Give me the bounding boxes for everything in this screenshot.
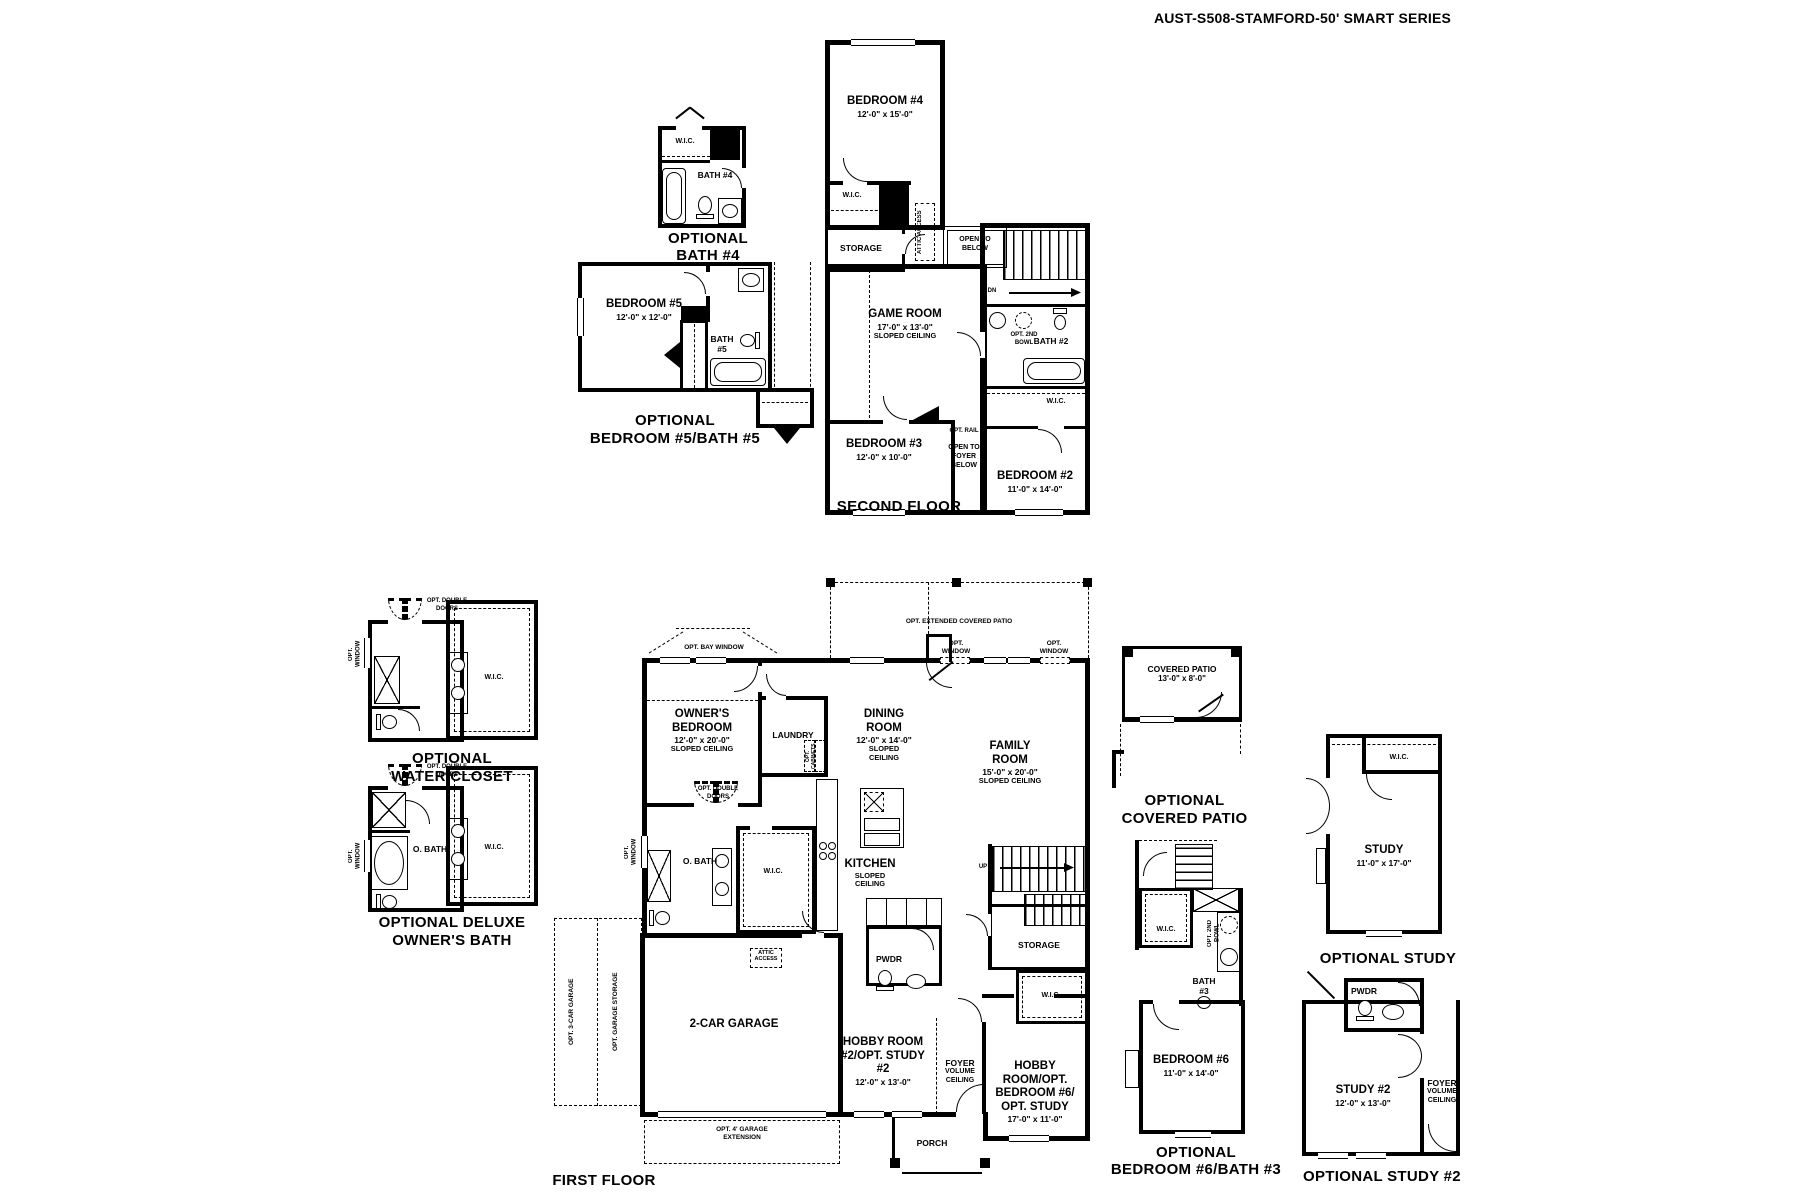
room-name: FOYER bbox=[936, 1058, 984, 1068]
caption-owners-bath: OWNER'S BATH bbox=[352, 932, 552, 950]
toilet bbox=[878, 970, 892, 986]
room-label-foyer: FOYER VOLUME CEILING bbox=[1424, 1078, 1460, 1106]
door-arc bbox=[958, 998, 982, 1022]
island-sink bbox=[864, 792, 884, 812]
door-arc bbox=[966, 914, 988, 936]
room-note: SLOPED CEILING bbox=[842, 872, 898, 889]
door-opening bbox=[706, 272, 710, 296]
room-label-storage: STORAGE bbox=[1012, 940, 1066, 950]
opt-double-doors-label: OPT. DOUBLE DOORS bbox=[696, 786, 740, 801]
shower bbox=[647, 850, 671, 902]
window bbox=[364, 840, 371, 872]
room-name: COVERED PATIO bbox=[1147, 664, 1217, 674]
sink bbox=[722, 204, 738, 218]
ceiling-break-line bbox=[647, 700, 758, 701]
sheet-title: AUST-S508-STAMFORD-50' SMART SERIES bbox=[1130, 10, 1475, 26]
room-dims: 12'-0" x 10'-0" bbox=[837, 452, 931, 462]
room-label-pwdr: PWDR bbox=[1338, 986, 1390, 996]
wall bbox=[984, 304, 1088, 307]
room-name: KITCHEN bbox=[842, 858, 898, 872]
room-label-bath5: BATH #5 bbox=[706, 334, 738, 354]
shelf-line bbox=[662, 156, 710, 157]
burner bbox=[819, 852, 827, 860]
opt-garage-storage-label: OPT. GARAGE STORAGE bbox=[612, 962, 624, 1062]
window bbox=[660, 657, 690, 664]
room-label-covered-patio: COVERED PATIO 13'-0" x 8'-0" bbox=[1147, 664, 1217, 684]
window bbox=[984, 657, 1006, 664]
caption-covered-patio: COVERED PATIO bbox=[1112, 810, 1257, 828]
door-arc bbox=[766, 674, 786, 696]
sink bbox=[451, 824, 465, 838]
door-leaf bbox=[675, 107, 690, 120]
opt-patio-line bbox=[830, 582, 831, 658]
sink bbox=[1220, 948, 1238, 966]
opt-2nd-bowl-label: OPT. 2ND BOWL bbox=[1207, 912, 1217, 954]
sink bbox=[715, 882, 729, 896]
room-label-wic: W.I.C. bbox=[750, 868, 796, 877]
room-name: FOYER bbox=[1424, 1078, 1460, 1088]
room-label-owners-bedroom: OWNER'S BEDROOM 12'-0" x 20'-0" SLOPED C… bbox=[650, 708, 754, 754]
stairs bbox=[992, 846, 1086, 892]
opt-window-label: OPT. WINDOW bbox=[624, 832, 636, 872]
window bbox=[641, 836, 648, 868]
context-line bbox=[810, 262, 811, 392]
room-label-hobby6: HOBBY ROOM/OPT. BEDROOM #6/ OPT. STUDY 1… bbox=[984, 1060, 1086, 1124]
room-label-kitchen: KITCHEN SLOPED CEILING bbox=[842, 858, 898, 889]
closet-line bbox=[694, 324, 695, 388]
opt-bay-window-label: OPT. BAY WINDOW bbox=[666, 644, 762, 652]
shower bbox=[1193, 888, 1239, 912]
toilet-tank bbox=[1356, 1016, 1374, 1021]
bathtub bbox=[710, 358, 766, 386]
optional-study2-plan: PWDR STUDY #2 12'-0" x 13'-0" FOYER VOLU… bbox=[1300, 972, 1472, 1187]
door-opening bbox=[750, 826, 772, 830]
toilet-tank bbox=[755, 332, 760, 349]
bathtub bbox=[1023, 358, 1085, 384]
room-name: FAMILY ROOM bbox=[978, 740, 1042, 767]
bench-line bbox=[926, 898, 927, 926]
wall-jog bbox=[1125, 1050, 1139, 1088]
post bbox=[952, 578, 961, 587]
room-label-laundry: LAUNDRY bbox=[764, 730, 822, 740]
wall bbox=[984, 426, 1088, 429]
first-floor-plan: OPT. EXTENDED COVERED PATIO OPT. BAY WIN… bbox=[554, 560, 1102, 1200]
window bbox=[1366, 930, 1402, 937]
door-opening bbox=[742, 168, 746, 188]
wall bbox=[1362, 736, 1366, 772]
room-label-obath: O. BATH bbox=[410, 844, 450, 854]
stairs bbox=[1003, 230, 1087, 280]
optional-deluxe-owners-bath-plan: OPT. DOUBLE DOORS OPT. WINDOW O. BATH W.… bbox=[352, 752, 552, 950]
toilet-tank bbox=[376, 714, 381, 730]
window bbox=[850, 657, 884, 664]
room-label-pwdr: PWDR bbox=[868, 954, 910, 964]
toilet-tank bbox=[696, 214, 714, 219]
room-name: HOBBY ROOM/OPT. BEDROOM #6/ OPT. STUDY bbox=[984, 1060, 1086, 1114]
window bbox=[892, 1111, 922, 1118]
post bbox=[1231, 646, 1242, 657]
room-name: BEDROOM #3 bbox=[837, 438, 931, 452]
bathtub-inner bbox=[666, 172, 682, 220]
room-name: BEDROOM #2 bbox=[993, 470, 1077, 484]
door-opening bbox=[676, 126, 702, 130]
ceiling-break-line bbox=[869, 270, 870, 418]
burner bbox=[828, 852, 836, 860]
opt-door-arc bbox=[405, 598, 422, 620]
optional-bed6-bath3-plan: W.I.C. OPT. 2ND BOWL BATH #3 BEDROOM #6 … bbox=[1115, 838, 1277, 1183]
wall bbox=[1122, 646, 1242, 649]
caption-optional-deluxe: OPTIONAL DELUXE bbox=[352, 914, 552, 932]
room-label-porch: PORCH bbox=[902, 1138, 962, 1148]
shelf-line bbox=[743, 833, 809, 927]
wall bbox=[984, 386, 1088, 389]
sink bbox=[451, 852, 465, 866]
room-label-wic: W.I.C. bbox=[829, 192, 875, 201]
context-line bbox=[1240, 724, 1241, 754]
window bbox=[1140, 716, 1174, 723]
room-name: BEDROOM #6 bbox=[1149, 1054, 1233, 1068]
room-name: BEDROOM #4 bbox=[839, 95, 931, 109]
room-label-dining: DINING ROOM 12'-0" x 14'-0" SLOPED CEILI… bbox=[854, 708, 914, 763]
opt-door-arc bbox=[388, 764, 405, 786]
wall bbox=[1424, 1152, 1460, 1156]
opt-window bbox=[1040, 657, 1070, 664]
room-note: VOLUME CEILING bbox=[936, 1068, 984, 1086]
post bbox=[1122, 646, 1133, 657]
opt-double-doors-label: OPT. DOUBLE DOORS bbox=[424, 764, 470, 779]
toilet-tank bbox=[376, 894, 381, 910]
room-name: DINING ROOM bbox=[854, 708, 914, 735]
door-opening bbox=[388, 620, 422, 624]
room-dims: 12'-0" x 13'-0" bbox=[836, 1077, 930, 1087]
toilet bbox=[1358, 1000, 1372, 1016]
room-label-storage: STORAGE bbox=[829, 243, 893, 253]
wall bbox=[372, 706, 420, 709]
room-label-wic: W.I.C. bbox=[664, 138, 706, 147]
bench bbox=[866, 898, 942, 926]
caption-optional: OPTIONAL bbox=[578, 412, 772, 430]
window bbox=[1009, 1135, 1049, 1142]
wall bbox=[1239, 646, 1242, 720]
room-label-garage: 2-CAR GARAGE bbox=[682, 1018, 786, 1032]
wall bbox=[892, 1117, 895, 1159]
room-label-wic: W.I.C. bbox=[1035, 398, 1077, 407]
room-label-hobby2: HOBBY ROOM #2/OPT. STUDY #2 12'-0" x 13'… bbox=[836, 1036, 930, 1087]
opt-ext-patio-label: OPT. EXTENDED COVERED PATIO bbox=[900, 618, 1018, 626]
room-dims: 13'-0" x 8'-0" bbox=[1147, 674, 1217, 683]
opt-window-label: OPT. WINDOW bbox=[348, 836, 360, 876]
post bbox=[890, 1158, 900, 1168]
opt-bay-line bbox=[676, 628, 750, 629]
window bbox=[696, 657, 726, 664]
room-label-wic: W.I.C. bbox=[1143, 926, 1189, 935]
post bbox=[1083, 578, 1092, 587]
window bbox=[1356, 1152, 1386, 1159]
wall bbox=[1112, 750, 1116, 788]
post bbox=[980, 1158, 990, 1168]
door-arc bbox=[734, 666, 758, 692]
room-label-wic: W.I.C. bbox=[1374, 754, 1424, 763]
caption-second-floor: SECOND FLOOR bbox=[819, 498, 979, 516]
window bbox=[364, 638, 371, 668]
window bbox=[1175, 1131, 1211, 1138]
patio-line bbox=[928, 582, 929, 634]
context-line bbox=[774, 262, 775, 392]
room-name: GAME ROOM bbox=[857, 308, 953, 322]
room-label-bath3: BATH #3 bbox=[1187, 976, 1221, 996]
garden-tub bbox=[374, 841, 404, 885]
chase-wall bbox=[879, 183, 909, 226]
sink bbox=[906, 974, 926, 989]
door-opening bbox=[758, 666, 762, 692]
wall bbox=[825, 264, 987, 515]
sink bbox=[451, 658, 465, 672]
opt-garage-divider bbox=[597, 918, 598, 1106]
window bbox=[1008, 657, 1030, 664]
context-line bbox=[1307, 971, 1335, 999]
room-label-bedroom2: BEDROOM #2 11'-0" x 14'-0" bbox=[993, 470, 1077, 494]
stair-arrow bbox=[1000, 867, 1066, 869]
shower bbox=[372, 792, 406, 828]
room-dims: 17'-0" x 11'-0" bbox=[984, 1114, 1086, 1124]
optional-covered-patio-plan: COVERED PATIO 13'-0" x 8'-0" OPTIONAL CO… bbox=[1112, 622, 1272, 827]
door-opening bbox=[982, 998, 986, 1022]
opt-door-arc bbox=[388, 598, 405, 620]
caption-optional: OPTIONAL bbox=[1115, 1144, 1277, 1162]
burner bbox=[819, 842, 827, 850]
opt-window-label: OPT. WINDOW bbox=[348, 634, 360, 674]
attic-access-label: ATTIC ACCESS bbox=[751, 950, 781, 963]
room-note: SLOPED CEILING bbox=[650, 745, 754, 754]
caption-optional-study2: OPTIONAL STUDY #2 bbox=[1292, 1168, 1472, 1186]
window bbox=[1015, 509, 1063, 516]
sink bbox=[1382, 1004, 1404, 1020]
toilet bbox=[1054, 315, 1066, 330]
toilet bbox=[698, 196, 712, 214]
caption-optional-study: OPTIONAL STUDY bbox=[1313, 950, 1463, 968]
caption-bed5-bath5: BEDROOM #5/BATH #5 bbox=[558, 430, 792, 448]
open-to-foyer-label: OPEN TO FOYER BELOW bbox=[941, 444, 987, 470]
room-label-bedroom4: BEDROOM #4 12'-0" x 15'-0" bbox=[839, 95, 931, 119]
room-label-obath: O. BATH bbox=[678, 856, 722, 866]
room-label-bedroom3: BEDROOM #3 12'-0" x 10'-0" bbox=[837, 438, 931, 462]
optional-bath4-plan: W.I.C. BATH #4 OPTIONAL BATH #4 bbox=[652, 116, 764, 268]
wall bbox=[988, 904, 1088, 970]
room-dims: 12'-0" x 13'-0" bbox=[1324, 1098, 1402, 1108]
door-arc bbox=[1143, 852, 1167, 876]
porch-step bbox=[902, 1172, 982, 1174]
caption-optional: OPTIONAL bbox=[1112, 792, 1257, 810]
wall bbox=[738, 803, 762, 807]
bathtub-inner bbox=[1027, 362, 1081, 380]
wall bbox=[982, 994, 1014, 998]
caption-first-floor: FIRST FLOOR bbox=[544, 1172, 664, 1190]
optional-sink bbox=[1015, 312, 1032, 329]
window bbox=[577, 298, 584, 336]
shelf-line bbox=[831, 210, 907, 211]
room-note: VOLUME CEILING bbox=[1424, 1088, 1460, 1106]
door-arc bbox=[1428, 1124, 1456, 1152]
toilet bbox=[382, 895, 397, 909]
garage-door bbox=[658, 1111, 826, 1118]
room-label-study: STUDY 11'-0" x 17'-0" bbox=[1346, 844, 1422, 868]
door-leaf bbox=[689, 107, 704, 120]
chase-wall bbox=[710, 126, 740, 160]
floorplan-sheet: AUST-S508-STAMFORD-50' SMART SERIES BEDR… bbox=[0, 0, 1800, 1200]
second-floor-plan: BEDROOM #4 12'-0" x 15'-0" W.I.C. STORAG… bbox=[825, 40, 1097, 527]
door-opening bbox=[883, 420, 909, 424]
door-opening bbox=[388, 786, 422, 790]
sink bbox=[742, 273, 760, 287]
optional-sink bbox=[1220, 916, 1238, 934]
room-note: SLOPED CEILING bbox=[978, 777, 1042, 786]
opt-cabinets-label: OPT. CABINETS bbox=[805, 741, 814, 771]
wall bbox=[658, 160, 710, 163]
wall bbox=[949, 634, 952, 662]
opt-garage-ext-label: OPT. 4' GARAGE EXTENSION bbox=[700, 1126, 784, 1142]
toilet bbox=[382, 715, 397, 729]
shelf-line bbox=[1332, 744, 1436, 745]
sink bbox=[989, 312, 1006, 329]
room-label-study2: STUDY #2 12'-0" x 13'-0" bbox=[1324, 1084, 1402, 1108]
wall bbox=[1326, 734, 1442, 934]
room-label-wic: W.I.C. bbox=[474, 844, 514, 853]
toilet-tank bbox=[649, 910, 654, 926]
room-label-bath2: BATH #2 bbox=[1031, 336, 1071, 346]
opt-double-doors-label: OPT. DOUBLE DOORS bbox=[424, 598, 470, 613]
wall bbox=[926, 634, 929, 662]
shelf-line bbox=[1145, 894, 1187, 942]
wall bbox=[1122, 646, 1125, 720]
room-dims: 11'-0" x 17'-0" bbox=[1346, 858, 1422, 868]
room-dims: 11'-0" x 14'-0" bbox=[1149, 1068, 1233, 1078]
optional-study-plan: W.I.C. STUDY 11'-0" x 17'-0" OPTIONAL ST… bbox=[1318, 700, 1468, 972]
room-dims: 11'-0" x 14'-0" bbox=[993, 484, 1077, 494]
room-dims: 12'-0" x 15'-0" bbox=[839, 109, 931, 119]
room-name: OWNER'S BEDROOM bbox=[650, 708, 754, 735]
wall bbox=[642, 803, 694, 807]
opt-window-label: OPT. WINDOW bbox=[934, 640, 978, 656]
wall bbox=[838, 933, 843, 1117]
optional-bed5-bath5-plan: BEDROOM #5 12'-0" x 12'-0" BATH #5 OPTIO… bbox=[578, 256, 818, 456]
toilet-tank bbox=[876, 986, 894, 991]
bench-line bbox=[886, 898, 887, 926]
room-name: STUDY bbox=[1346, 844, 1422, 858]
caption-optional: OPTIONAL bbox=[652, 230, 764, 248]
bench-line bbox=[906, 898, 907, 926]
stairs-dn-label: DN bbox=[983, 288, 1001, 296]
burner bbox=[828, 842, 836, 850]
room-label-family: FAMILY ROOM 15'-0" x 20'-0" SLOPED CEILI… bbox=[978, 740, 1042, 786]
bathtub-inner bbox=[714, 362, 762, 382]
window bbox=[1318, 1152, 1348, 1159]
room-note: SLOPED CEILING bbox=[854, 745, 914, 762]
caption-bed6-bath3: BEDROOM #6/BATH #3 bbox=[1095, 1161, 1297, 1179]
front-door-opening bbox=[956, 1112, 984, 1117]
wall bbox=[370, 830, 410, 833]
island-cabinet bbox=[864, 833, 900, 846]
opt-rail-label: OPT. RAIL bbox=[943, 428, 985, 436]
opt-patio-line bbox=[1088, 582, 1089, 658]
stairs bbox=[1175, 844, 1213, 890]
room-label-wic: W.I.C. bbox=[474, 674, 514, 683]
context-line bbox=[1139, 840, 1217, 841]
wall bbox=[762, 773, 828, 777]
opt-3car-label: OPT. 3-CAR GARAGE bbox=[568, 962, 580, 1062]
window bbox=[854, 1111, 884, 1118]
room-label-foyer: FOYER VOLUME CEILING bbox=[936, 1058, 984, 1086]
island-cabinet bbox=[864, 818, 900, 831]
stair-arrow bbox=[1009, 292, 1073, 294]
toilet bbox=[655, 911, 670, 925]
toilet bbox=[740, 334, 755, 347]
wall-jog bbox=[1316, 848, 1326, 884]
door-opening bbox=[988, 914, 991, 936]
opt-door-arc bbox=[405, 764, 422, 786]
toilet-tank bbox=[1053, 308, 1067, 314]
room-note: SLOPED CEILING bbox=[857, 332, 953, 341]
shelf-line bbox=[987, 393, 1085, 394]
room-name: HOBBY ROOM #2/OPT. STUDY #2 bbox=[836, 1036, 930, 1077]
sink bbox=[451, 686, 465, 700]
opt-window-label: OPT. WINDOW bbox=[1032, 640, 1076, 656]
door-opening bbox=[766, 696, 786, 700]
window-seat-line bbox=[762, 402, 808, 403]
room-name: STUDY #2 bbox=[1324, 1084, 1402, 1098]
room-label-game-room: GAME ROOM 17'-0" x 13'-0" SLOPED CEILING bbox=[857, 308, 953, 340]
window bbox=[851, 39, 915, 46]
front-door-arc bbox=[956, 1084, 984, 1112]
shower bbox=[374, 656, 400, 704]
post bbox=[826, 578, 835, 587]
bathtub bbox=[662, 168, 686, 224]
room-label-bedroom6: BEDROOM #6 11'-0" x 14'-0" bbox=[1149, 1054, 1233, 1078]
wall bbox=[1054, 994, 1087, 998]
attic-access-label: ATTIC ACCESS bbox=[917, 205, 933, 259]
